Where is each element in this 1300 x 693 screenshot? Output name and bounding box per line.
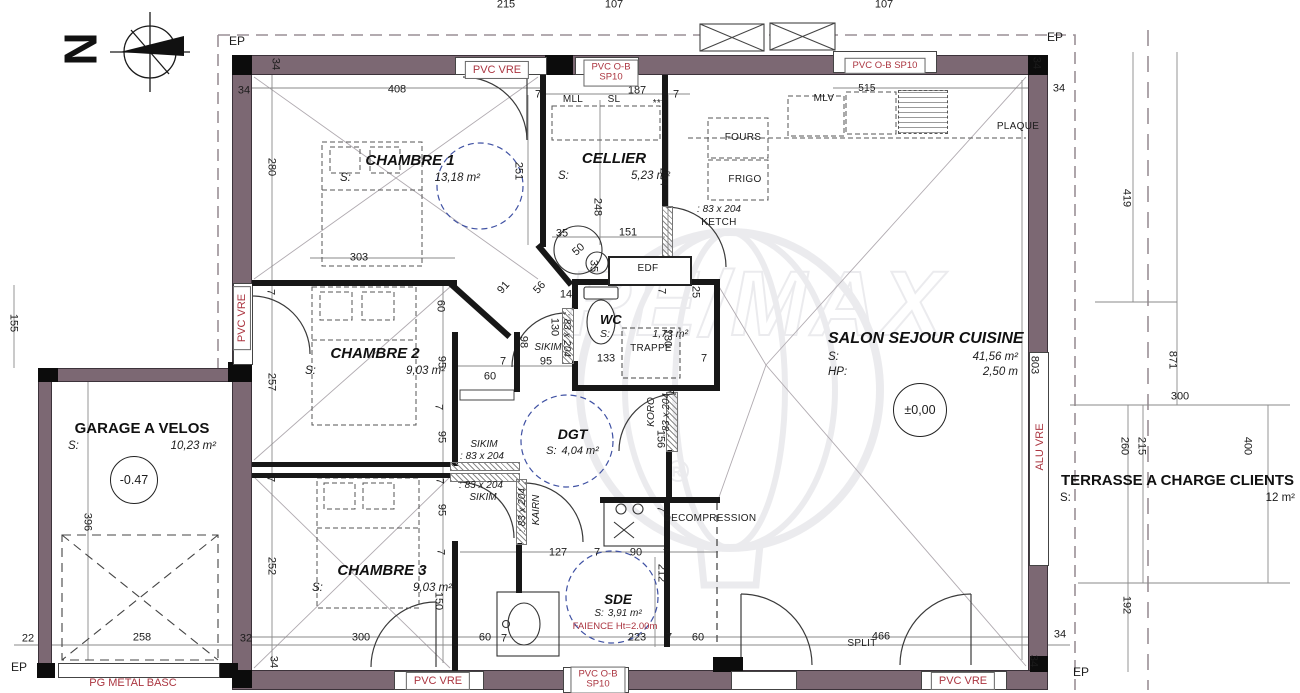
- dimension-label: 7: [435, 549, 446, 555]
- roof-window-icons: [700, 23, 835, 51]
- door-size-tag: KAIRN: [532, 495, 542, 526]
- door-size-tag: KORO: [647, 397, 657, 426]
- equipment-label: MLV: [814, 94, 835, 104]
- wall-infill: [713, 657, 743, 672]
- dimension-label: 34: [1054, 630, 1066, 641]
- partition: [452, 541, 458, 671]
- room-label-chambre2: CHAMBRE 2 S:9,03 m²: [305, 345, 445, 377]
- door-size-tag: : 83 x 204: [459, 481, 503, 491]
- room-name: DGT: [525, 426, 620, 442]
- dimension-label: 803: [1029, 356, 1040, 374]
- dimension-label: 60: [692, 633, 704, 644]
- door-size-tag: : 83 x 204: [460, 452, 504, 462]
- room-label-garage: GARAGE A VELOS S:10,23 m²: [68, 420, 216, 452]
- door-size-tag: SIKIM: [469, 493, 496, 503]
- room-label-cellier: CELLIER S:5,23 m²: [558, 150, 670, 182]
- dimension-label: 95: [436, 356, 447, 368]
- window-type-label: PVC VRE: [233, 286, 251, 350]
- partition: [666, 450, 672, 500]
- room-name: GARAGE A VELOS: [68, 420, 216, 437]
- dimension-label: 871: [1167, 351, 1178, 369]
- room-area-label: S:: [340, 172, 351, 184]
- dimension-label: 300: [352, 633, 370, 644]
- corner-post: [228, 362, 252, 382]
- partition: [252, 280, 457, 286]
- dimension-label: 300: [1171, 392, 1189, 403]
- dimension-label: 60: [479, 633, 491, 644]
- dimension-label: 91: [496, 280, 512, 296]
- door-size-tag: : 83 x 204: [518, 488, 528, 532]
- kitchen-grille: [898, 90, 948, 134]
- room-label-sde: SDE S:3,91 m²: [568, 592, 668, 619]
- room-area-label: S:: [305, 365, 316, 377]
- partition: [572, 385, 720, 391]
- room-label-dgt: DGT S:4,04 m²: [525, 426, 620, 457]
- dimension-label: 280: [266, 158, 277, 176]
- dimension-label: 107: [605, 0, 623, 11]
- room-name: SALON SEJOUR CUISINE: [828, 330, 1018, 348]
- dimension-label: 7: [535, 90, 541, 101]
- clearance-circles: [437, 143, 658, 643]
- dimension-label: 98: [518, 336, 529, 348]
- room-hp-value: 2,50 m: [983, 366, 1018, 378]
- room-name: SDE: [568, 592, 668, 607]
- room-area-label: S:: [828, 351, 839, 363]
- dimension-label: 408: [388, 85, 406, 96]
- dimension-label: 151: [619, 228, 637, 239]
- room-area-value: 12 m²: [1266, 492, 1295, 504]
- dimension-label: 34: [238, 86, 250, 97]
- sink-icon: [497, 592, 559, 656]
- dimension-label: 95: [436, 504, 447, 516]
- dimension-label: 133: [597, 354, 615, 365]
- room-name: CHAMBRE 1: [340, 152, 480, 169]
- window-type-label: PG METAL BASC: [89, 677, 176, 689]
- window-type-label: PVC VRE: [465, 61, 529, 79]
- room-label-chambre1: CHAMBRE 1 S:13,18 m²: [340, 152, 480, 184]
- dimension-label: 419: [1121, 189, 1132, 207]
- dimension-label: 7: [663, 549, 669, 560]
- dimension-label: 215: [497, 0, 515, 11]
- dimension-label: 252: [266, 557, 277, 575]
- kitchen-counters: [552, 92, 1026, 200]
- dimension-label: 34: [1053, 84, 1065, 95]
- dimension-label: 56: [532, 280, 548, 296]
- garage-wall-left: [38, 368, 52, 676]
- room-name: CHAMBRE 2: [305, 345, 445, 362]
- room-area-label: S:: [546, 445, 556, 457]
- room-label-salon: SALON SEJOUR CUISINE S:41,56 m² HP:2,50 …: [828, 330, 1018, 378]
- dimension-label: 35: [588, 260, 599, 272]
- dimension-label: 22: [22, 634, 34, 645]
- dimension-label: 258: [133, 633, 151, 644]
- room-label-wc: WC S:1,73 m²: [600, 312, 688, 340]
- equipment-label: MLL: [563, 95, 583, 105]
- dimension-label: 60: [484, 372, 496, 383]
- room-area-value: 10,23 m²: [171, 440, 216, 452]
- partition: [600, 497, 720, 503]
- door-size-tag: : 83 x 204: [662, 393, 672, 437]
- partition: [516, 543, 522, 593]
- dimension-label: 155: [8, 314, 19, 332]
- corner-post: [37, 663, 55, 678]
- dimension-label: 248: [592, 198, 603, 216]
- room-area-label: S:: [600, 328, 610, 340]
- room-area-value: 4,04 m²: [562, 445, 599, 457]
- ep-label: EP: [229, 35, 245, 47]
- dimension-label: 95: [436, 431, 447, 443]
- shelf-icon: [460, 390, 514, 400]
- dimension-label: 400: [1242, 437, 1253, 455]
- room-area-value: 13,18 m²: [435, 172, 480, 184]
- dimension-lines: [14, 52, 1290, 672]
- door-size-tag: : 83 x 204: [561, 313, 571, 357]
- door-threshold-ch2: [450, 462, 520, 471]
- room-area-label: S:: [594, 608, 603, 619]
- dimension-label: 107: [875, 0, 893, 11]
- room-area-label: S:: [558, 170, 569, 182]
- dimension-label: 95: [540, 357, 552, 368]
- room-name: TERRASSE A CHARGE CLIENTS: [1060, 472, 1295, 489]
- dimension-label: 60: [435, 300, 446, 312]
- equipment-label: 515: [858, 84, 876, 94]
- dimension-label: 7: [701, 354, 707, 365]
- partition: [572, 285, 578, 309]
- door-size-tag: SIKIM: [470, 440, 497, 450]
- room-name: CELLIER: [558, 150, 670, 167]
- garage-door-opening: [58, 663, 220, 678]
- room-label-chambre3: CHAMBRE 3 S:9,03 m²: [312, 562, 452, 594]
- dimension-label: 7: [501, 634, 507, 645]
- dimension-label: 192: [1121, 596, 1132, 614]
- window-type-label: PVC O-B SP10: [570, 667, 625, 693]
- equipment-label: DECOMPRESSION: [664, 514, 757, 524]
- partition: [252, 462, 450, 467]
- dimension-label: 303: [350, 253, 368, 264]
- room-hp-label: HP:: [828, 366, 847, 378]
- dimension-label: 50: [571, 242, 587, 258]
- dimension-label: 7: [673, 90, 679, 101]
- dimension-label: 7: [656, 288, 667, 294]
- corner-post: [218, 663, 238, 678]
- dimension-label: 215: [1136, 437, 1147, 455]
- window-type-label: PVC O-B SP10: [583, 60, 638, 87]
- floor-plan: RE/MAX R: [0, 0, 1300, 693]
- dimension-label: 260: [1119, 437, 1130, 455]
- window-type-label: PVC VRE: [931, 672, 995, 690]
- door-size-tag: : 83 x 204: [697, 205, 741, 215]
- equipment-label: FRIGO: [728, 175, 761, 185]
- ep-label: EP: [1047, 31, 1063, 43]
- equipment-label: KETCH: [701, 218, 736, 228]
- window-type-label: ALU VRE: [1034, 423, 1046, 470]
- dimension-label: 7: [655, 506, 666, 512]
- door-size-tag: SIKIM: [534, 343, 561, 353]
- equipment-label: SPLIT: [847, 639, 876, 649]
- dimension-label: 34: [270, 58, 281, 70]
- window-type-label: PVC VRE: [406, 672, 470, 690]
- level-marker-salon: ±0,00: [893, 383, 947, 437]
- dimension-label: 32: [240, 634, 252, 645]
- room-label-terrasse: TERRASSE A CHARGE CLIENTS S:12 m²: [1060, 472, 1295, 504]
- dimension-label: 34: [1028, 655, 1039, 667]
- dimension-label: 150: [433, 592, 444, 610]
- room-area-value: 3,91 m²: [608, 608, 642, 619]
- corner-post: [38, 368, 58, 382]
- dimension-label: 7: [666, 633, 672, 644]
- dimension-label: 127: [549, 548, 567, 559]
- garage-wall-top: [38, 368, 232, 382]
- dimension-label: 396: [82, 513, 93, 531]
- dimension-label: 34: [1031, 57, 1042, 69]
- dimension-label: 257: [266, 373, 277, 391]
- partition: [662, 75, 668, 207]
- dimension-label: 25: [690, 286, 701, 298]
- dimension-label: 34: [268, 656, 279, 668]
- svg-text:R: R: [672, 464, 681, 479]
- equipment-label: TRAPPE: [630, 344, 672, 354]
- dimension-label: 35: [556, 229, 568, 240]
- dimension-label: 212: [656, 564, 667, 582]
- dimension-label: 7: [433, 404, 444, 410]
- ep-label: EP: [11, 661, 27, 673]
- partition: [452, 332, 458, 466]
- equipment-label: SL: [608, 95, 621, 105]
- dimension-label: 7: [594, 548, 600, 559]
- room-area-label: S:: [1060, 492, 1071, 504]
- level-marker-garage: -0.47: [110, 456, 158, 504]
- equipment-label: PLAQUE: [997, 122, 1039, 132]
- equipment-label: ***: [653, 99, 666, 109]
- partition: [714, 279, 720, 391]
- ep-label: EP: [1073, 666, 1089, 678]
- window-type-label: PVC O-B SP10: [845, 58, 926, 74]
- north-letter: N: [54, 32, 108, 65]
- window-type-label: FAIENCE Ht=2.00m: [573, 622, 658, 632]
- door-bottom-salon-1: [731, 671, 797, 690]
- partition: [540, 75, 546, 247]
- equipment-label: FOURS: [725, 133, 762, 143]
- corner-post: [232, 55, 252, 75]
- dimension-label: 7: [500, 357, 506, 368]
- dimension-label: 7: [265, 289, 276, 295]
- room-area-label: S:: [68, 440, 79, 452]
- dimension-label: 7: [265, 476, 276, 482]
- equipment-label: EDF: [638, 264, 659, 274]
- dimension-label: 223: [628, 633, 646, 644]
- room-name: CHAMBRE 3: [312, 562, 452, 579]
- dimension-label: 130: [549, 318, 560, 336]
- room-area-value: 41,56 m²: [973, 351, 1018, 363]
- partition: [252, 473, 450, 478]
- dimension-label: 187: [628, 86, 646, 97]
- dimension-label: 90: [630, 548, 642, 559]
- dimension-label: 7: [434, 478, 445, 484]
- room-name: WC: [600, 312, 688, 327]
- dimension-label: 284: [658, 168, 669, 186]
- compass-icon: [110, 12, 190, 92]
- room-area-label: S:: [312, 582, 323, 594]
- wall-infill: [545, 55, 573, 75]
- dimension-label: 14: [560, 290, 572, 301]
- dimension-label: 251: [513, 162, 524, 180]
